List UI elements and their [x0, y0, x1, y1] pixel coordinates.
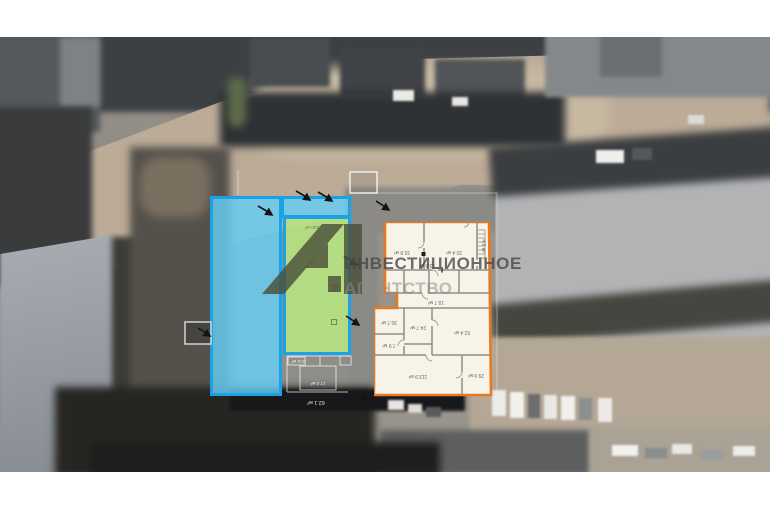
roof-dark — [250, 37, 330, 87]
vehicle — [510, 392, 524, 418]
room-area-label: 13.3 м² — [419, 262, 436, 268]
vehicle — [426, 407, 441, 417]
orange-floor-plan: 33.8 м² 20.4 м² 13.3 м² 4.9 м² 19.7 м² 3… — [374, 222, 493, 397]
room-area-label: 24.7 м² — [410, 324, 427, 330]
shadow-bottom-band — [90, 442, 440, 472]
vehicle — [544, 395, 557, 419]
vehicle — [388, 400, 404, 410]
blue-zone-main — [210, 196, 282, 396]
vehicle — [645, 448, 667, 458]
room-area-label: 30.7 м² — [381, 319, 398, 325]
room-area-label: 20.4 м² — [446, 249, 463, 255]
vehicle — [632, 148, 652, 160]
room-area-label: 52.4 м² — [454, 329, 471, 335]
room-area-label: 113.9 м² — [408, 373, 427, 379]
room-area-label: 19.7 м² — [428, 299, 445, 305]
ground-brown — [140, 157, 210, 217]
room-area-label: 7.9 м² — [382, 342, 396, 348]
vehicle — [452, 97, 468, 106]
vehicle — [700, 450, 724, 460]
room-area-label: 29.9 м² — [468, 372, 485, 378]
vehicle — [598, 398, 612, 422]
vehicle — [408, 404, 422, 413]
vehicle — [688, 115, 704, 124]
vehicle — [561, 396, 575, 420]
column-marker — [331, 319, 337, 325]
vehicle — [393, 90, 414, 101]
vehicle — [579, 398, 592, 420]
roof-top-right-dark — [600, 37, 662, 77]
blue-zone-strip — [281, 196, 351, 218]
vehicle — [492, 390, 506, 416]
room-area-label: 4.9 м² — [480, 239, 486, 253]
column-marker — [422, 252, 426, 256]
column-marker — [332, 285, 338, 291]
vehicle — [733, 446, 755, 456]
vehicle — [612, 445, 638, 456]
vehicle — [672, 444, 692, 454]
room-area-label: 33.8 м² — [394, 249, 411, 255]
tree-blob — [228, 77, 246, 127]
satellite-texture — [60, 37, 100, 107]
green-zone — [283, 216, 351, 355]
listing-image: 33.8 м² 20.4 м² 13.3 м² 4.9 м² 19.7 м² 3… — [0, 0, 770, 510]
vehicle — [596, 150, 624, 163]
vehicle — [528, 394, 540, 418]
